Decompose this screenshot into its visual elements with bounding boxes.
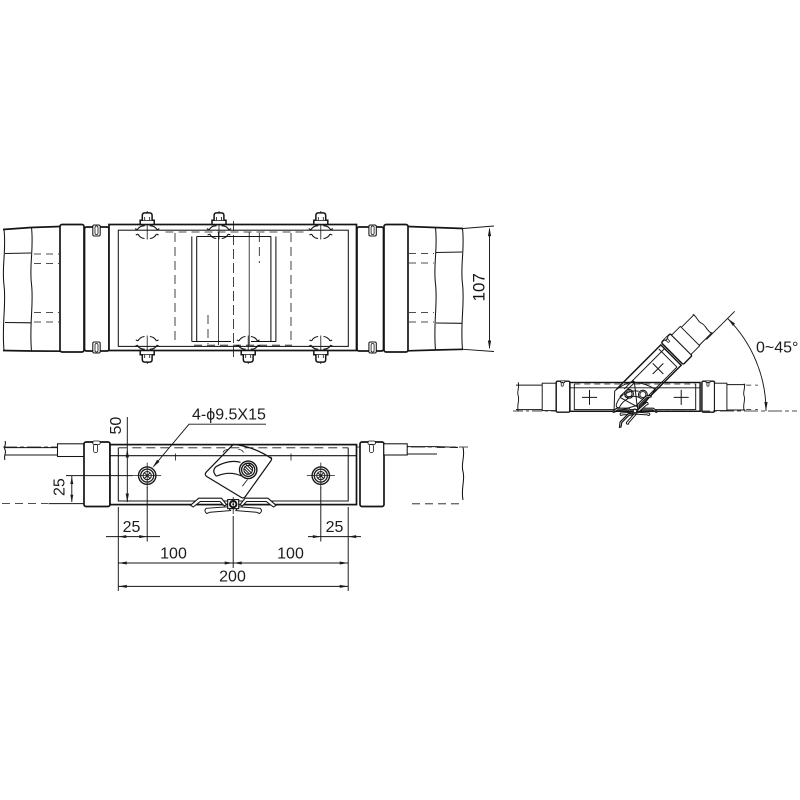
- svg-text:50: 50: [108, 417, 125, 435]
- svg-text:4-ϕ9.5X15: 4-ϕ9.5X15: [192, 407, 266, 424]
- svg-text:107: 107: [470, 273, 489, 301]
- svg-text:100: 100: [160, 546, 187, 563]
- svg-text:100: 100: [277, 546, 304, 563]
- svg-text:0~45°: 0~45°: [756, 340, 798, 357]
- svg-text:25: 25: [123, 519, 141, 536]
- svg-text:25: 25: [52, 478, 69, 496]
- svg-text:200: 200: [219, 569, 246, 586]
- svg-text:25: 25: [326, 519, 344, 536]
